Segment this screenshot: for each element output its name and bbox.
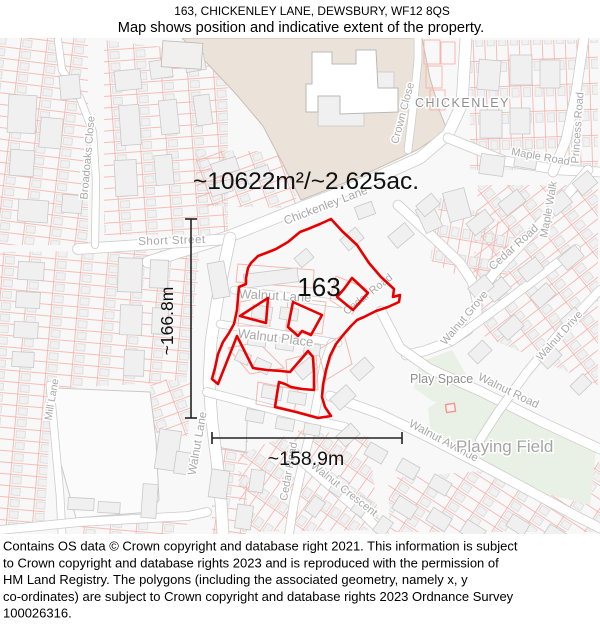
svg-text:163: 163 <box>297 272 340 302</box>
svg-text:Short Street: Short Street <box>138 234 206 248</box>
svg-text:~158.9m: ~158.9m <box>268 448 344 470</box>
svg-text:163, CHICKENLEY LANE, DEWSBURY: 163, CHICKENLEY LANE, DEWSBURY, WF12 8QS <box>174 4 450 18</box>
svg-text:~166.8m: ~166.8m <box>157 287 177 356</box>
svg-text:Playing Field: Playing Field <box>456 437 553 456</box>
svg-text:co-ordinates) are subject to C: co-ordinates) are subject to Crown copyr… <box>3 589 514 604</box>
svg-text:~10622m²/~2.625ac.: ~10622m²/~2.625ac. <box>193 168 419 195</box>
svg-text:to Crown copyright and databas: to Crown copyright and database rights 2… <box>3 555 499 570</box>
svg-text:Contains OS data © Crown copyr: Contains OS data © Crown copyright and d… <box>3 539 518 554</box>
svg-text:Map shows position and indicat: Map shows position and indicative extent… <box>118 20 484 36</box>
svg-text:CHICKENLEY: CHICKENLEY <box>415 96 510 110</box>
svg-text:Play Space: Play Space <box>410 372 473 386</box>
svg-text:HM Land Registry. The polygons: HM Land Registry. The polygons (includin… <box>3 572 468 587</box>
svg-text:100026316.: 100026316. <box>3 606 72 621</box>
